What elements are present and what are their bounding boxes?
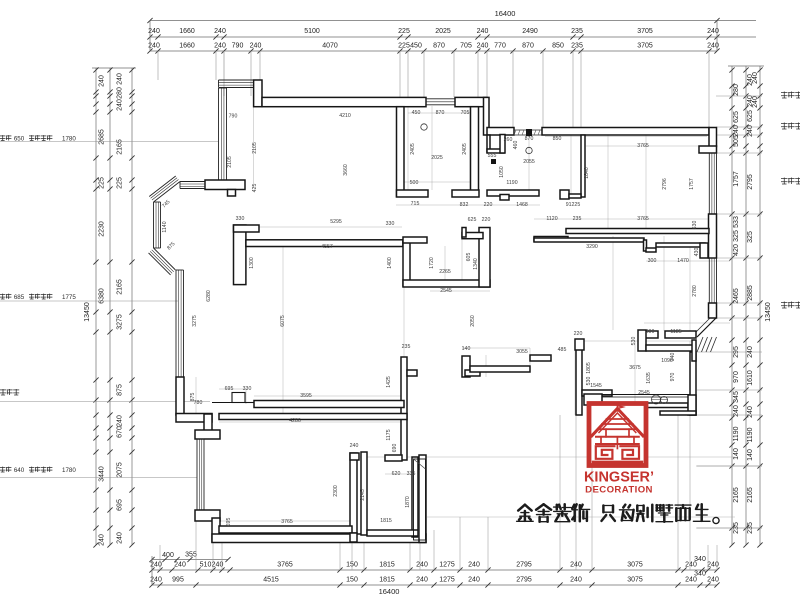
svg-text:340: 340 xyxy=(670,353,676,362)
svg-text:695: 695 xyxy=(226,518,232,527)
svg-text:240: 240 xyxy=(174,562,186,569)
svg-text:4070: 4070 xyxy=(322,43,338,50)
svg-text:235: 235 xyxy=(571,28,583,35)
svg-text:640: 640 xyxy=(14,467,25,474)
svg-text:3765: 3765 xyxy=(637,143,649,149)
svg-text:325: 325 xyxy=(747,231,754,243)
svg-text:870: 870 xyxy=(436,110,445,116)
svg-text:300: 300 xyxy=(646,329,655,335)
svg-text:2075: 2075 xyxy=(117,462,124,478)
svg-text:240: 240 xyxy=(477,28,489,35)
svg-text:1185: 1185 xyxy=(670,329,681,335)
svg-text:605: 605 xyxy=(466,253,472,262)
svg-text:240: 240 xyxy=(212,562,224,569)
svg-text:140: 140 xyxy=(733,448,740,460)
svg-text:790: 790 xyxy=(232,43,244,50)
svg-text:1720: 1720 xyxy=(429,257,435,269)
svg-text:2795: 2795 xyxy=(747,174,754,190)
svg-text:2050: 2050 xyxy=(470,315,476,327)
svg-text:1815: 1815 xyxy=(379,577,395,584)
svg-text:705: 705 xyxy=(461,110,470,116)
svg-text:1805: 1805 xyxy=(586,362,592,374)
svg-text:695: 695 xyxy=(117,499,124,511)
svg-text:533: 533 xyxy=(733,216,740,228)
svg-text:1870: 1870 xyxy=(405,496,411,508)
svg-text:875: 875 xyxy=(117,384,124,396)
svg-text:695: 695 xyxy=(225,386,234,392)
svg-text:870: 870 xyxy=(522,43,534,50)
svg-text:1775: 1775 xyxy=(62,294,76,301)
svg-text:780: 780 xyxy=(194,400,203,406)
svg-text:790: 790 xyxy=(229,114,238,120)
svg-text:2105: 2105 xyxy=(252,142,258,154)
svg-text:220: 220 xyxy=(482,217,491,223)
svg-text:3440: 3440 xyxy=(99,466,106,482)
svg-text:2545: 2545 xyxy=(440,288,452,294)
svg-text:325: 325 xyxy=(733,230,740,242)
svg-text:1815: 1815 xyxy=(379,562,395,569)
svg-text:2265: 2265 xyxy=(439,269,451,275)
svg-text:3275: 3275 xyxy=(192,315,198,327)
svg-text:260: 260 xyxy=(504,137,513,143)
svg-text:225: 225 xyxy=(398,28,410,35)
svg-text:630: 630 xyxy=(692,221,698,230)
svg-text:235: 235 xyxy=(571,43,583,50)
svg-text:240: 240 xyxy=(685,577,697,584)
svg-text:240: 240 xyxy=(570,577,582,584)
svg-text:1120: 1120 xyxy=(546,216,557,222)
svg-text:3705: 3705 xyxy=(637,43,653,50)
svg-text:1757: 1757 xyxy=(689,178,695,190)
svg-text:530: 530 xyxy=(631,337,637,346)
svg-text:1050: 1050 xyxy=(499,166,505,178)
svg-text:1660: 1660 xyxy=(179,28,195,35)
svg-text:3765: 3765 xyxy=(281,519,293,525)
svg-text:505: 505 xyxy=(733,135,740,147)
svg-text:335: 335 xyxy=(407,471,416,477)
svg-text:1815: 1815 xyxy=(380,518,392,524)
svg-text:340: 340 xyxy=(694,571,706,578)
svg-text:240: 240 xyxy=(117,415,124,427)
svg-text:240: 240 xyxy=(99,75,106,87)
svg-text:2230: 2230 xyxy=(99,221,106,237)
svg-text:KINGSER’: KINGSER’ xyxy=(584,470,654,486)
svg-text:3765: 3765 xyxy=(637,216,649,222)
svg-text:3595: 3595 xyxy=(300,393,312,399)
svg-text:2885: 2885 xyxy=(747,285,754,301)
svg-text:995: 995 xyxy=(172,577,184,584)
svg-text:220: 220 xyxy=(484,202,493,208)
svg-text:240: 240 xyxy=(707,577,719,584)
svg-text:6380: 6380 xyxy=(99,288,106,304)
svg-text:150: 150 xyxy=(346,577,358,584)
svg-text:625: 625 xyxy=(747,110,754,122)
svg-text:1190: 1190 xyxy=(733,426,740,441)
svg-text:870: 870 xyxy=(525,136,534,142)
svg-text:91225: 91225 xyxy=(566,202,581,208)
svg-text:1275: 1275 xyxy=(439,562,455,569)
svg-text:2025: 2025 xyxy=(431,155,443,161)
svg-text:3660: 3660 xyxy=(343,164,349,176)
svg-text:2685: 2685 xyxy=(99,129,106,145)
svg-text:4210: 4210 xyxy=(339,113,351,119)
svg-text:3290: 3290 xyxy=(586,244,598,250)
svg-text:4286: 4286 xyxy=(289,418,301,424)
svg-text:240: 240 xyxy=(752,72,759,84)
svg-text:715: 715 xyxy=(411,201,420,207)
svg-text:3705: 3705 xyxy=(637,28,653,35)
svg-text:240: 240 xyxy=(117,532,124,544)
svg-text:240: 240 xyxy=(350,443,359,449)
svg-text:16400: 16400 xyxy=(495,9,516,18)
svg-text:2105: 2105 xyxy=(227,156,233,168)
svg-text:1635: 1635 xyxy=(646,372,652,384)
svg-text:240: 240 xyxy=(99,534,106,546)
svg-text:3075: 3075 xyxy=(627,562,643,569)
svg-text:1400: 1400 xyxy=(387,257,393,269)
svg-text:2025: 2025 xyxy=(435,28,451,35)
svg-text:4515: 4515 xyxy=(263,577,279,584)
svg-text:3675: 3675 xyxy=(629,365,641,371)
svg-text:3765: 3765 xyxy=(277,562,293,569)
svg-text:1610: 1610 xyxy=(747,370,754,386)
svg-text:2780: 2780 xyxy=(692,285,698,297)
svg-text:3055: 3055 xyxy=(516,349,528,355)
svg-text:400: 400 xyxy=(162,552,174,559)
svg-text:1470: 1470 xyxy=(677,258,689,264)
svg-text:425: 425 xyxy=(252,184,258,193)
svg-text:240: 240 xyxy=(416,577,428,584)
svg-text:485: 485 xyxy=(558,347,567,353)
svg-text:330: 330 xyxy=(386,221,395,227)
svg-text:5100: 5100 xyxy=(304,28,320,35)
svg-text:685: 685 xyxy=(14,294,25,301)
svg-text:450: 450 xyxy=(410,43,422,50)
svg-text:2795: 2795 xyxy=(516,562,532,569)
svg-text:225: 225 xyxy=(99,177,106,189)
svg-text:1425: 1425 xyxy=(386,376,392,388)
svg-text:2300: 2300 xyxy=(333,485,339,497)
svg-text:340: 340 xyxy=(694,556,706,563)
svg-text:420: 420 xyxy=(733,244,740,256)
svg-text:2055: 2055 xyxy=(523,159,535,165)
svg-text:280: 280 xyxy=(117,87,124,99)
svg-text:1190: 1190 xyxy=(506,180,517,186)
svg-text:2795: 2795 xyxy=(516,577,532,584)
svg-text:555: 555 xyxy=(488,153,497,159)
svg-text:2165: 2165 xyxy=(747,487,754,503)
svg-text:510: 510 xyxy=(200,562,212,569)
svg-text:850: 850 xyxy=(552,43,564,50)
svg-text:13450: 13450 xyxy=(84,302,91,322)
svg-text:235: 235 xyxy=(573,216,582,222)
svg-text:1300: 1300 xyxy=(249,257,255,269)
svg-text:500: 500 xyxy=(410,180,419,186)
svg-text:1780: 1780 xyxy=(62,467,76,474)
svg-text:6075: 6075 xyxy=(280,315,286,327)
svg-text:1275: 1275 xyxy=(439,577,455,584)
svg-text:330: 330 xyxy=(236,216,245,222)
svg-text:225: 225 xyxy=(117,177,124,189)
svg-text:240: 240 xyxy=(416,562,428,569)
svg-text:430: 430 xyxy=(694,248,700,257)
svg-text:705: 705 xyxy=(460,43,472,50)
svg-text:1468: 1468 xyxy=(516,202,528,208)
svg-text:355: 355 xyxy=(185,552,197,559)
svg-text:16400: 16400 xyxy=(379,587,400,596)
svg-text:235: 235 xyxy=(402,344,411,350)
svg-text:2796: 2796 xyxy=(662,178,668,190)
svg-text:3275: 3275 xyxy=(117,314,124,330)
svg-text:300: 300 xyxy=(648,258,657,264)
svg-text:240: 240 xyxy=(214,28,226,35)
svg-text:1190: 1190 xyxy=(747,427,754,442)
svg-text:2405: 2405 xyxy=(462,143,468,155)
svg-text:625: 625 xyxy=(733,111,740,123)
svg-text:5295: 5295 xyxy=(330,219,342,225)
svg-text:345: 345 xyxy=(733,391,740,403)
svg-text:140: 140 xyxy=(462,346,471,352)
svg-text:850: 850 xyxy=(553,136,562,142)
svg-text:240: 240 xyxy=(250,43,262,50)
svg-text:4557: 4557 xyxy=(321,244,333,250)
svg-text:970: 970 xyxy=(670,373,676,382)
svg-text:625: 625 xyxy=(468,217,477,223)
svg-text:1175: 1175 xyxy=(386,429,392,440)
svg-text:1140: 1140 xyxy=(162,221,168,232)
svg-text:2545: 2545 xyxy=(638,390,650,396)
svg-text:2165: 2165 xyxy=(733,487,740,503)
svg-text:240: 240 xyxy=(214,43,226,50)
svg-text:240: 240 xyxy=(468,562,480,569)
svg-text:DECORATION: DECORATION xyxy=(585,485,653,496)
svg-text:13450: 13450 xyxy=(765,302,772,322)
svg-text:2145: 2145 xyxy=(360,489,366,501)
svg-text:3075: 3075 xyxy=(627,577,643,584)
svg-text:832: 832 xyxy=(460,202,469,208)
svg-text:2405: 2405 xyxy=(410,143,416,155)
svg-text:460: 460 xyxy=(513,141,519,150)
svg-text:330: 330 xyxy=(243,386,252,392)
svg-text:225: 225 xyxy=(398,43,410,50)
svg-text:870: 870 xyxy=(433,43,445,50)
svg-text:1840: 1840 xyxy=(584,167,590,179)
svg-text:770: 770 xyxy=(494,43,506,50)
svg-text:140: 140 xyxy=(747,449,754,461)
svg-text:2165: 2165 xyxy=(117,279,124,295)
svg-text:240: 240 xyxy=(477,43,489,50)
svg-text:1545: 1545 xyxy=(590,383,602,389)
svg-text:6280: 6280 xyxy=(206,290,212,302)
svg-text:450: 450 xyxy=(412,110,421,116)
svg-text:240: 240 xyxy=(117,73,124,85)
svg-text:620: 620 xyxy=(392,471,401,477)
svg-text:240: 240 xyxy=(468,577,480,584)
svg-text:690: 690 xyxy=(392,444,398,453)
svg-text:240: 240 xyxy=(117,99,124,111)
svg-text:220: 220 xyxy=(574,331,583,337)
svg-text:670: 670 xyxy=(117,426,124,438)
svg-text:1660: 1660 xyxy=(179,43,195,50)
svg-text:2490: 2490 xyxy=(522,28,538,35)
svg-text:1340: 1340 xyxy=(473,258,479,270)
svg-text:1757: 1757 xyxy=(733,171,740,187)
svg-text:970: 970 xyxy=(733,371,740,383)
